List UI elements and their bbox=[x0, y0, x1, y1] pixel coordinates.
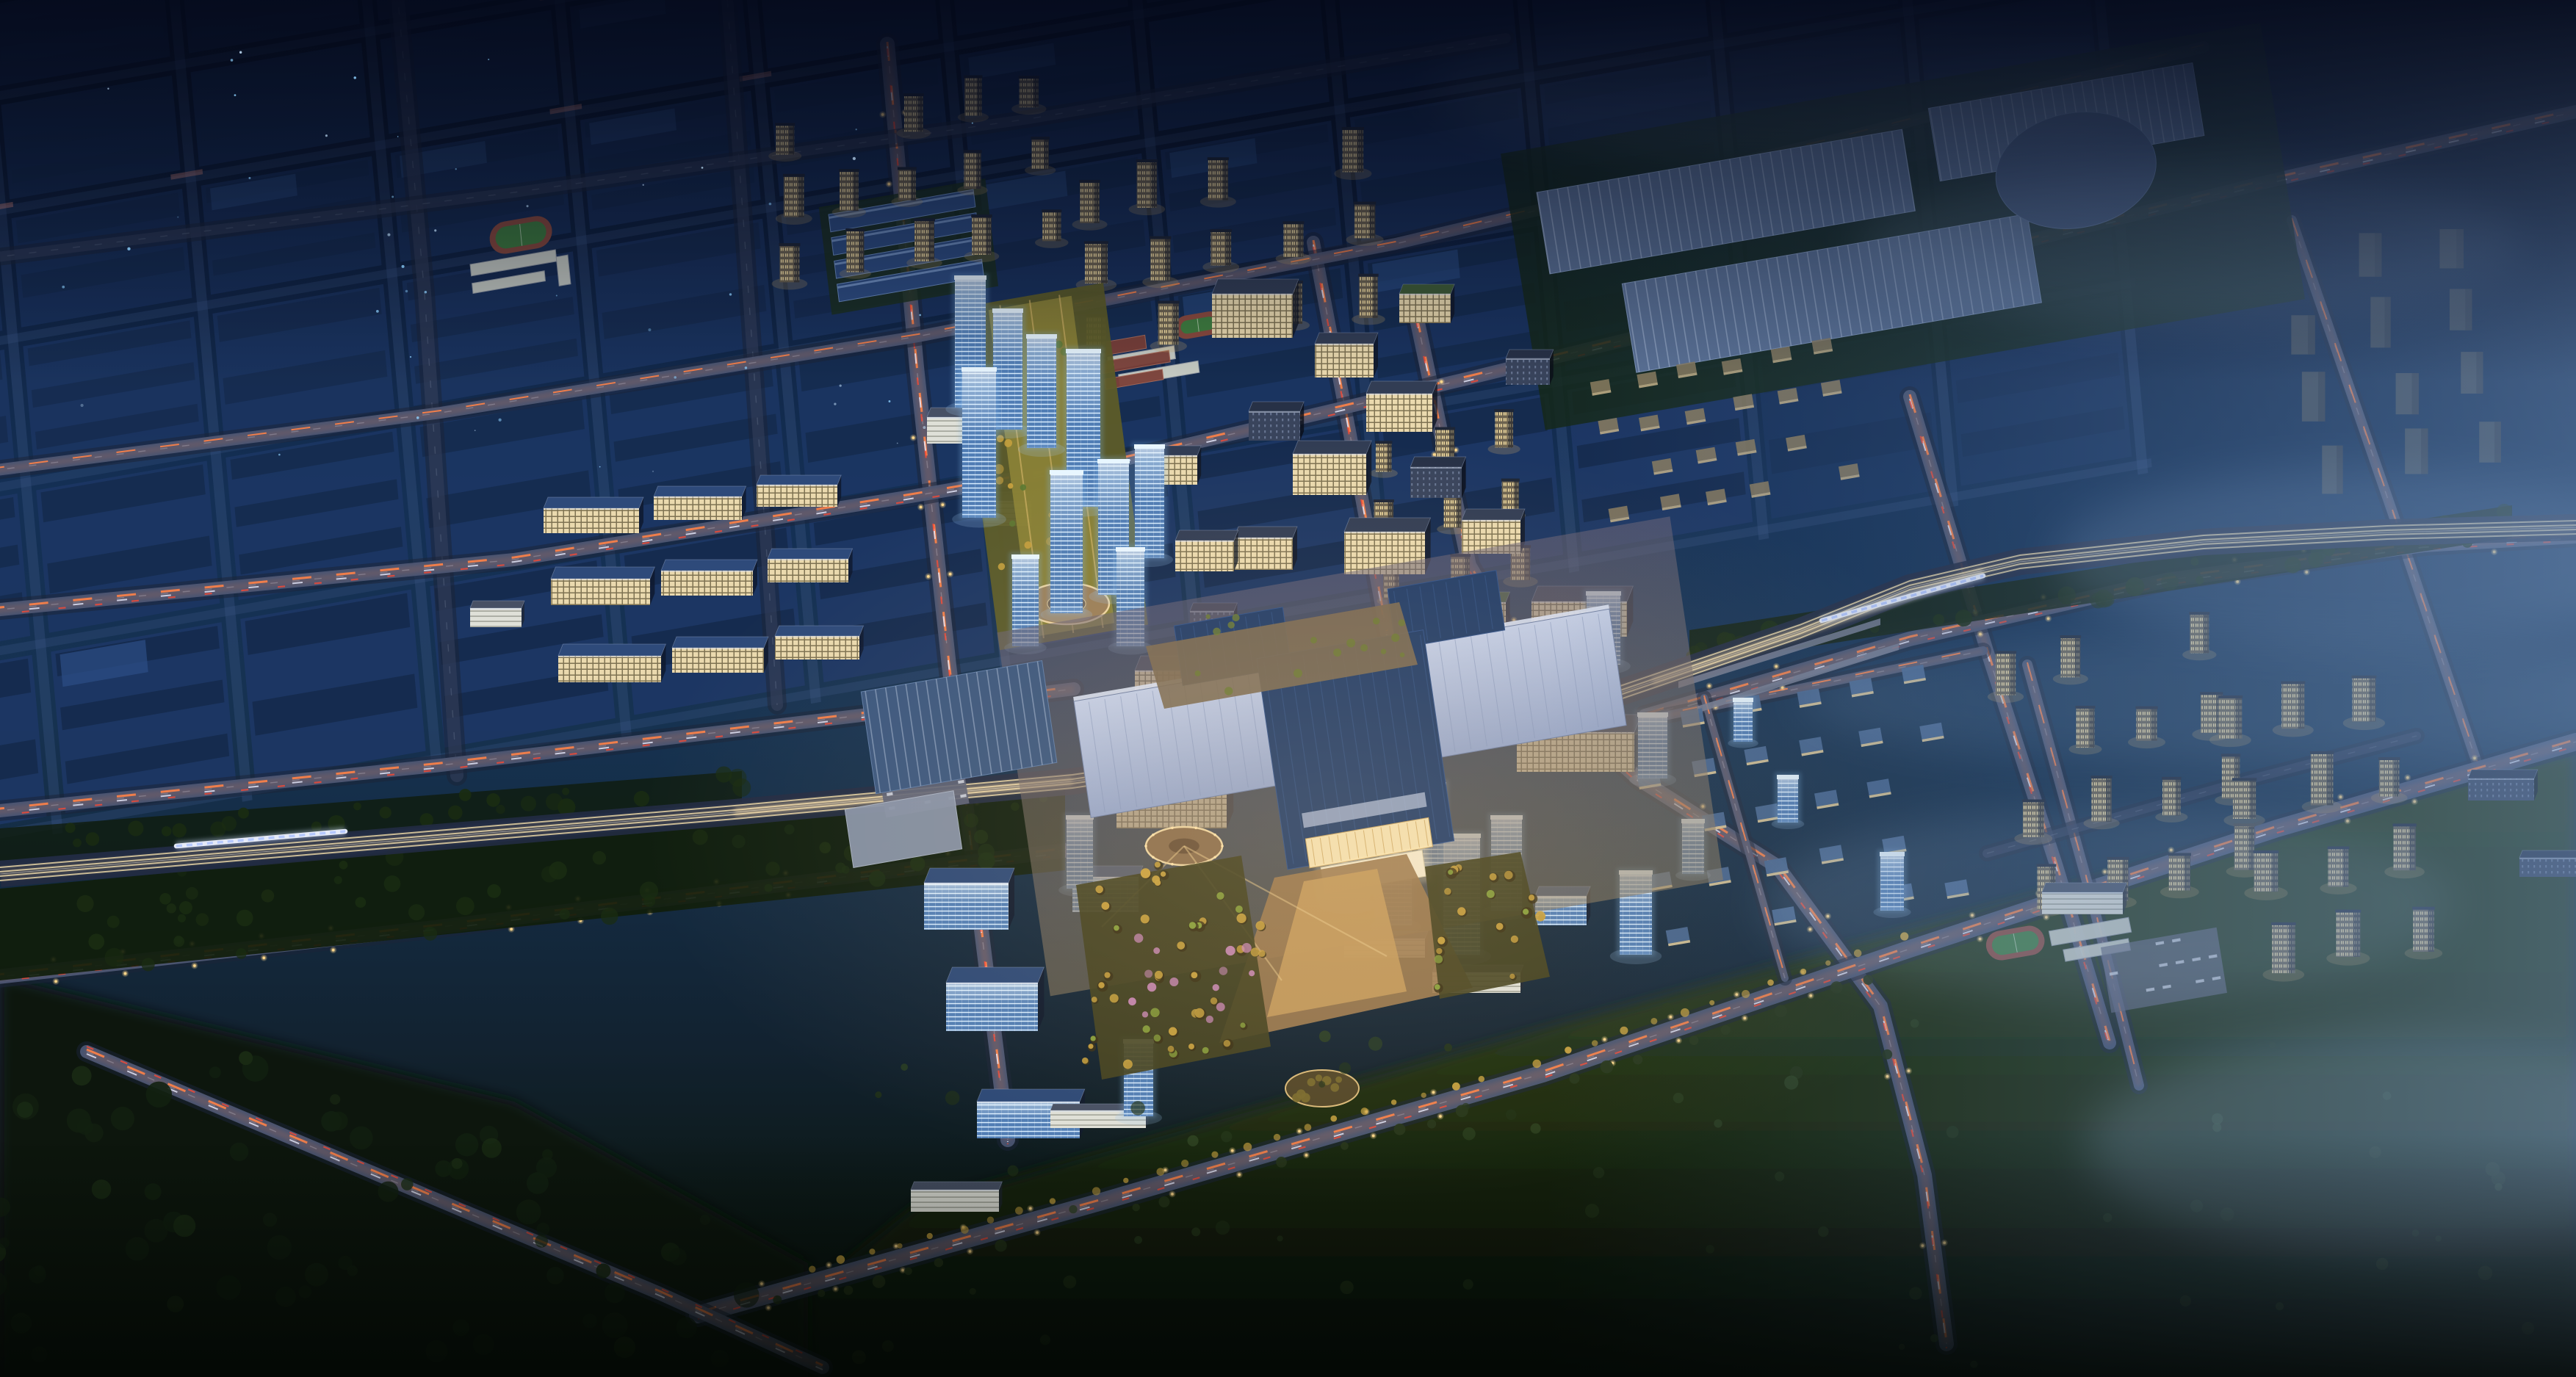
scene-canvas bbox=[0, 0, 2576, 1377]
atmosphere bbox=[0, 0, 2576, 1377]
city-aerial-rendering bbox=[0, 0, 2576, 1377]
bottom-vignette bbox=[0, 1135, 2576, 1377]
top-vignette bbox=[0, 0, 2576, 382]
